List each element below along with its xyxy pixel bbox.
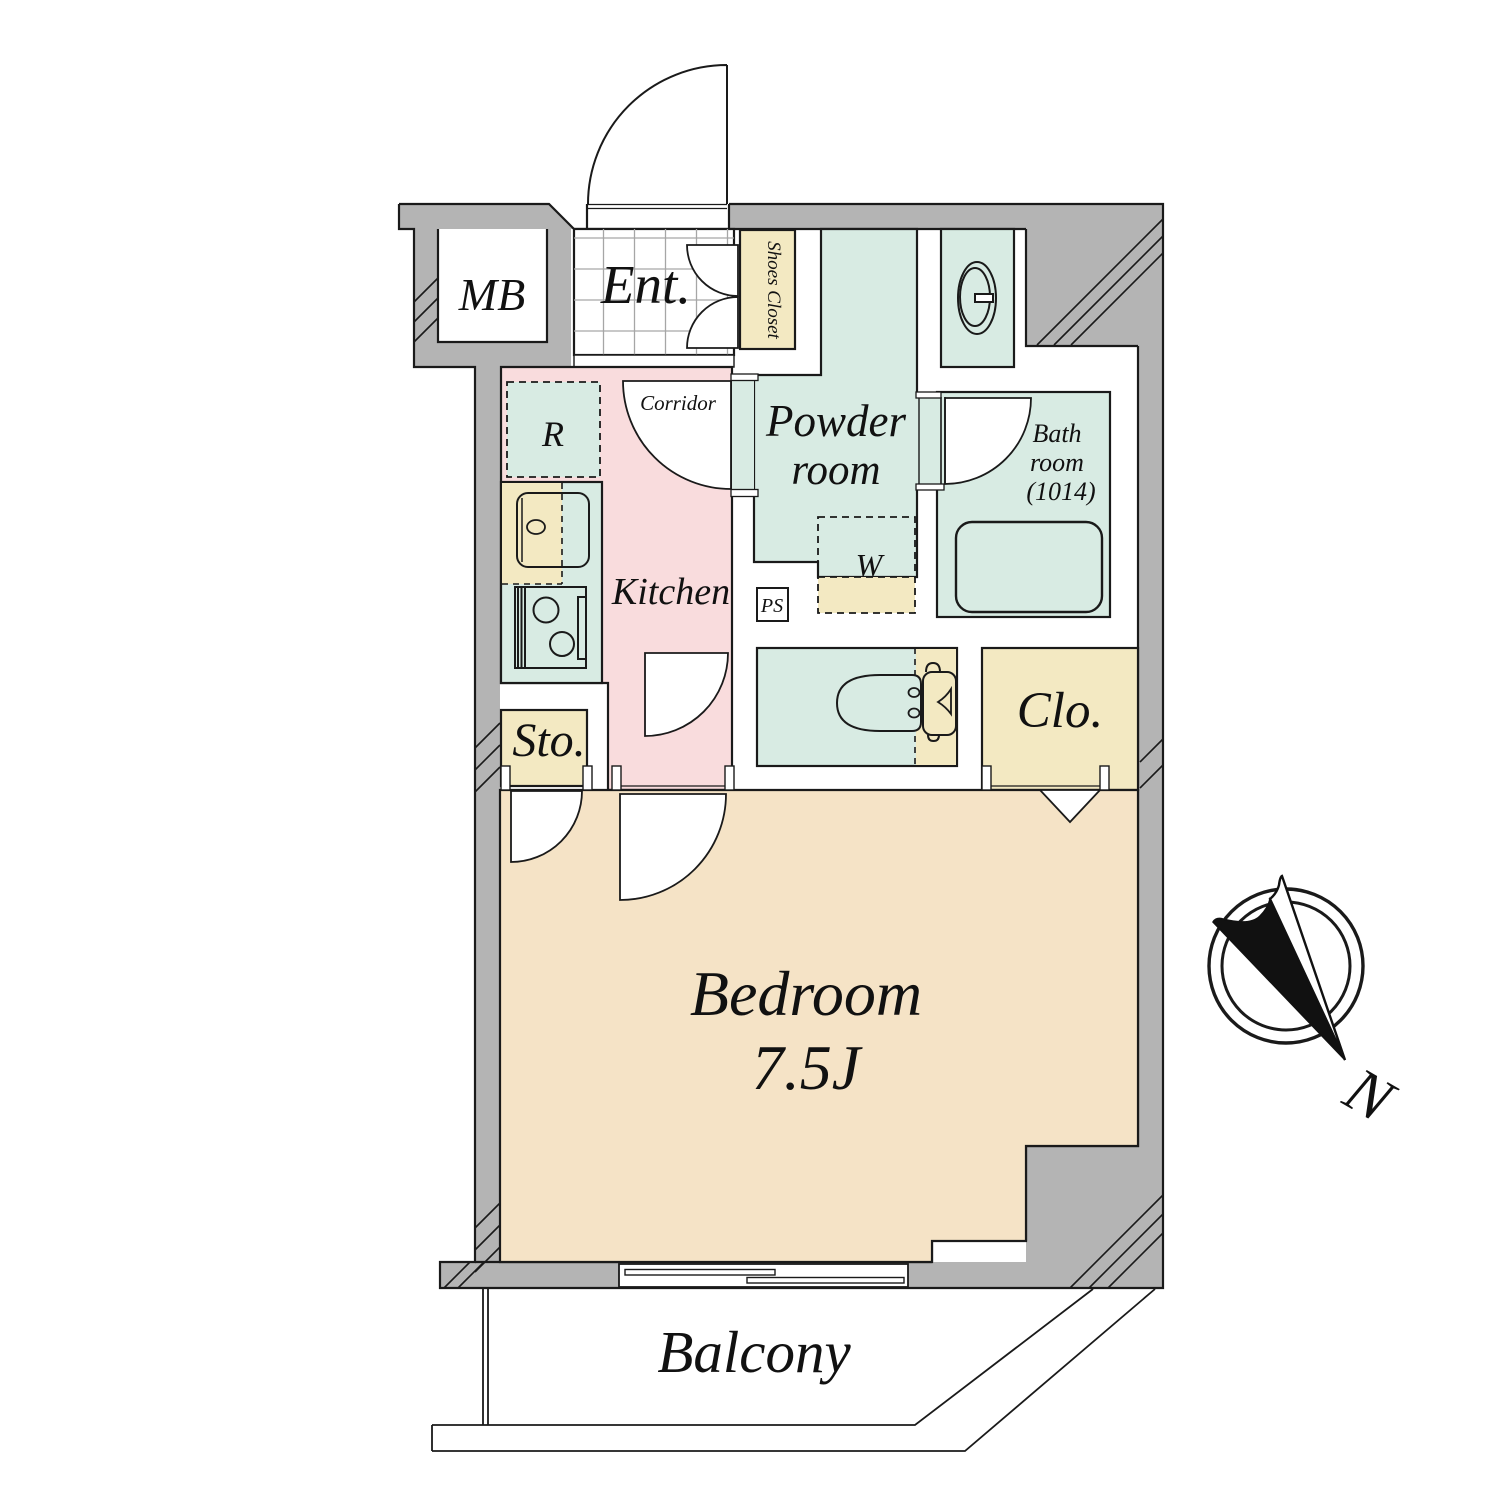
svg-text:room: room: [1030, 448, 1084, 477]
svg-text:Bath: Bath: [1032, 419, 1081, 448]
svg-text:MB: MB: [458, 269, 525, 320]
svg-text:Balcony: Balcony: [657, 1319, 851, 1385]
svg-text:PS: PS: [760, 595, 783, 617]
svg-text:(1014): (1014): [1026, 477, 1095, 506]
svg-text:7.5J: 7.5J: [752, 1032, 863, 1103]
svg-text:R: R: [541, 414, 564, 454]
svg-text:Sto.: Sto.: [512, 714, 585, 767]
svg-text:Kitchen: Kitchen: [611, 571, 730, 613]
svg-text:Shoes Closet: Shoes Closet: [763, 241, 784, 339]
svg-text:Bedroom: Bedroom: [690, 958, 922, 1029]
svg-text:W: W: [856, 547, 886, 583]
svg-text:Clo.: Clo.: [1017, 683, 1103, 739]
svg-text:Corridor: Corridor: [640, 391, 717, 415]
svg-text:Ent.: Ent.: [600, 254, 691, 315]
svg-text:room: room: [791, 447, 880, 494]
svg-text:Powder: Powder: [765, 396, 906, 446]
